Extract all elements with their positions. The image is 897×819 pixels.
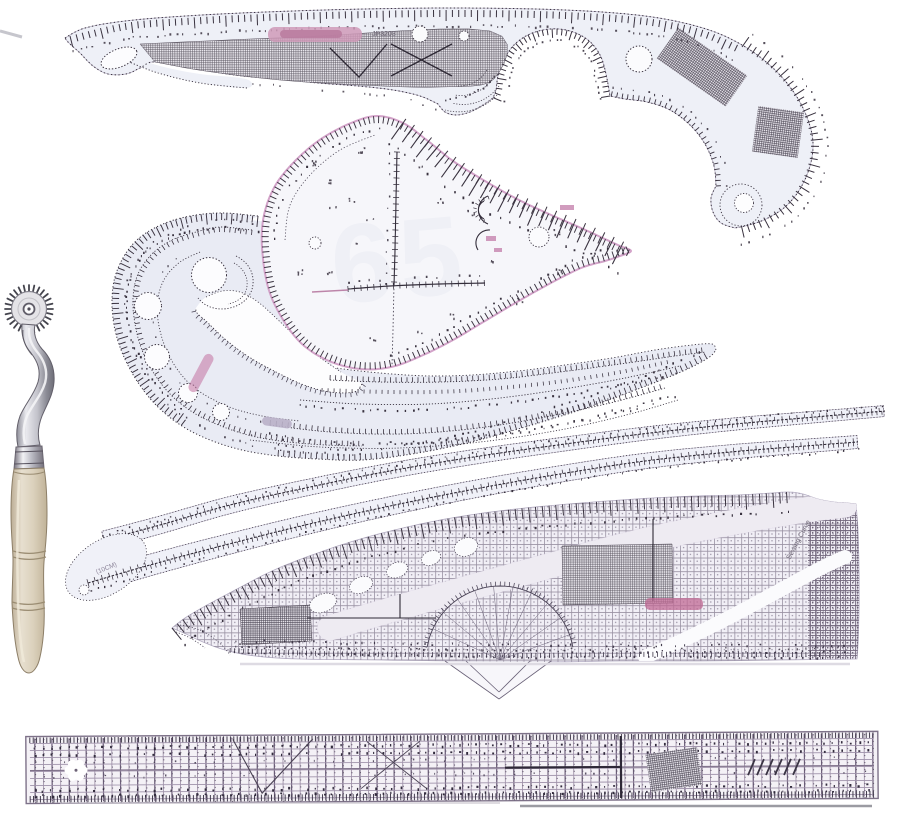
svg-text:JP3203: JP3203 bbox=[372, 31, 396, 38]
svg-text:65: 65 bbox=[326, 191, 473, 327]
